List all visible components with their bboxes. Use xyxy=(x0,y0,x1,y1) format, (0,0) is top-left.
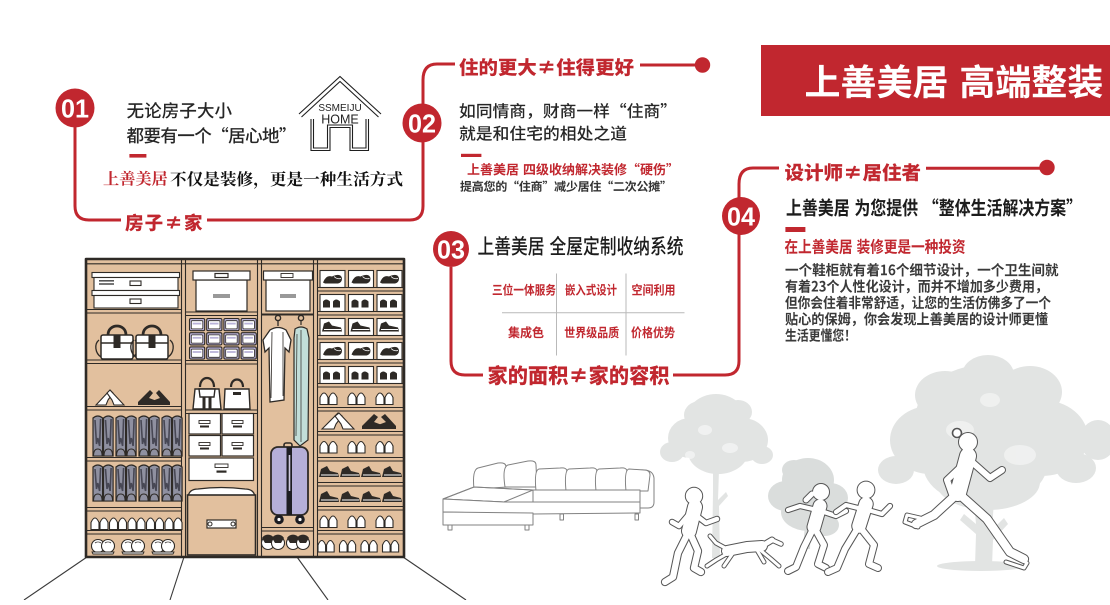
svg-text:HOME: HOME xyxy=(321,113,359,127)
svg-text:03: 03 xyxy=(437,234,465,264)
svg-text:02: 02 xyxy=(408,108,436,138)
svg-text:01: 01 xyxy=(61,93,89,123)
svg-text:04: 04 xyxy=(727,201,756,231)
